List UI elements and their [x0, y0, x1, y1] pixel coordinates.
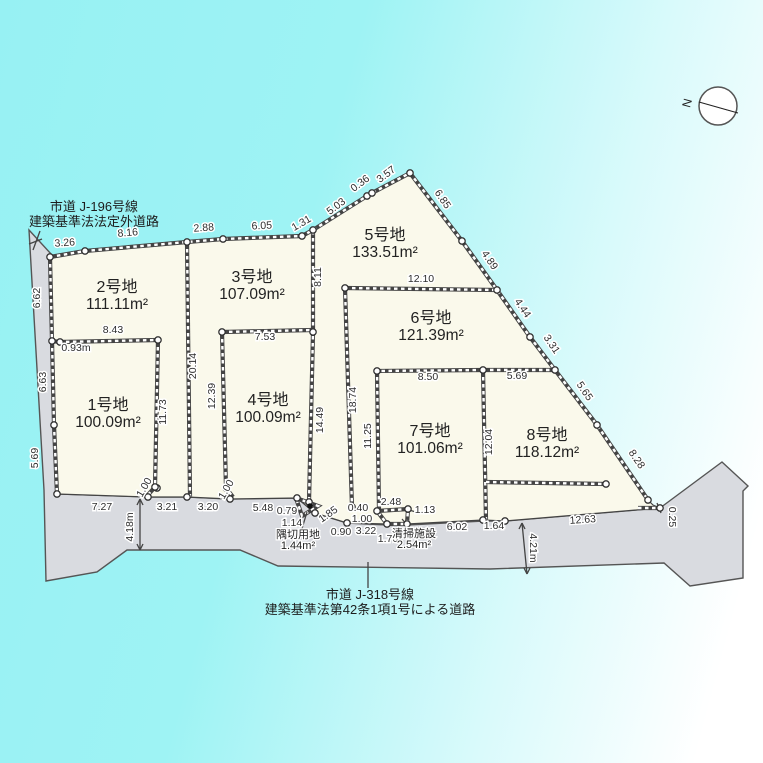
survey-point: [310, 227, 316, 233]
dimension-label: 4.18m: [124, 512, 136, 541]
plot-name: 2号地: [97, 278, 138, 296]
dimension-label: 1.13: [415, 504, 436, 516]
survey-point: [369, 190, 375, 196]
survey-point: [49, 338, 55, 344]
dimension-label: 7.27: [92, 501, 113, 513]
dimension-label: 3.22: [356, 525, 377, 537]
survey-point: [220, 236, 226, 242]
compass-n-label: N: [679, 97, 695, 109]
compass-circle: [699, 87, 737, 125]
dimension-label: 5.48: [253, 502, 274, 514]
dimension-label: 12.10: [408, 273, 434, 285]
site-plan-canvas: 3.268.162.886.051.315.030.363.576.854.89…: [0, 0, 763, 763]
special-area-size: 2.54m²: [397, 539, 432, 551]
dimension-label: 1.00: [352, 513, 373, 525]
dimension-label: 12.63: [569, 513, 596, 527]
north-compass: N: [679, 87, 738, 125]
dimension-label: 12.04: [483, 429, 495, 455]
plot-name: 3号地: [232, 268, 273, 286]
dimension-label: 6.62: [31, 288, 43, 309]
dimension-label: 1.14: [282, 517, 303, 529]
survey-point: [603, 481, 609, 487]
survey-point: [480, 367, 486, 373]
dimension-label: 12.39: [206, 383, 218, 409]
special-area-name: 清掃施設: [392, 526, 436, 540]
dimension-label: 8.11: [312, 267, 324, 287]
dimension-label: 3.26: [54, 236, 75, 249]
special-area-size: 1.44m²: [281, 540, 316, 552]
survey-point: [552, 367, 558, 373]
plot-name: 4号地: [248, 391, 289, 409]
survey-point: [645, 497, 651, 503]
dimension-label: 11.73: [157, 399, 169, 425]
dimension-label: 0.90: [331, 526, 352, 538]
special-area-label-2: 清掃施設2.54m²: [392, 526, 436, 551]
survey-point: [51, 422, 57, 428]
road-label-top: 市道 J-196号線: [50, 199, 138, 214]
plot-area: 100.09m²: [235, 409, 300, 426]
dimension-label: 14.49: [314, 407, 326, 433]
survey-point: [407, 170, 413, 176]
dimension-label: 2.88: [193, 221, 214, 234]
survey-point: [47, 254, 53, 260]
dimension-label: 6.05: [251, 219, 272, 232]
plot-name: 1号地: [88, 396, 129, 414]
special-area-label-1: 隅切用地1.44m²: [276, 528, 320, 552]
survey-point: [219, 329, 225, 335]
plot-area: 107.09m²: [219, 286, 284, 303]
survey-point: [155, 337, 161, 343]
plot-name: 6号地: [411, 309, 452, 327]
dimension-label: 8.43: [103, 324, 124, 336]
dimension-label: 0.79: [277, 505, 298, 517]
road-label-bottom: 市道 J-318号線: [326, 587, 414, 602]
survey-point: [374, 368, 380, 374]
survey-point: [527, 334, 533, 340]
leader-line: [527, 568, 530, 574]
dimension-label: 8.50: [418, 371, 439, 383]
plot-area: 100.09m²: [75, 414, 140, 431]
dimension-label: 0.36: [348, 173, 372, 195]
survey-point: [184, 494, 190, 500]
dimension-label: 4.21m: [527, 533, 539, 562]
benchmark-dot: [307, 503, 313, 509]
survey-point: [404, 521, 410, 527]
survey-point: [299, 233, 305, 239]
dimension-label: 5.69: [507, 370, 528, 382]
plot-area: 101.06m²: [397, 440, 462, 457]
survey-point: [310, 329, 316, 335]
survey-point: [405, 506, 411, 512]
survey-point: [594, 422, 600, 428]
plot-name: 5号地: [365, 226, 406, 244]
dimension-label: 8.28: [626, 447, 647, 471]
dimension-label: 11.25: [362, 423, 374, 449]
survey-point: [384, 521, 390, 527]
plot-name: 7号地: [410, 422, 451, 440]
survey-point: [374, 508, 380, 514]
land-plot-map: 3.268.162.886.051.315.030.363.576.854.89…: [0, 0, 763, 763]
road-label-top: 建築基準法法定外道路: [29, 214, 159, 229]
dimension-label: 3.20: [198, 501, 219, 513]
dimension-label: 18.74: [347, 387, 359, 413]
plot-area: 133.51m²: [352, 244, 417, 261]
boundary-line: [486, 482, 606, 484]
dimension-label: 1.64: [484, 520, 505, 532]
survey-point: [82, 248, 88, 254]
survey-point: [342, 285, 348, 291]
dimension-label: 2.48: [381, 496, 402, 508]
survey-point: [494, 287, 500, 293]
dimension-label: 6.63: [37, 372, 49, 393]
survey-point: [54, 491, 60, 497]
dimension-label: 6.02: [447, 521, 468, 533]
dimension-label: 7.53: [255, 331, 276, 343]
road-label-bottom: 建築基準法第42条1項1号による道路: [265, 602, 476, 617]
survey-point: [459, 238, 465, 244]
dimension-label: 5.69: [29, 448, 41, 469]
dimension-label: 20.14: [187, 353, 199, 379]
plot-name: 8号地: [527, 426, 568, 444]
dimension-label: 0.93m: [61, 342, 90, 354]
plot-area: 111.11m²: [86, 296, 148, 313]
survey-point: [184, 239, 190, 245]
dimension-label: 0.25: [666, 507, 678, 528]
survey-point: [294, 495, 300, 501]
plot-area: 121.39m²: [398, 327, 463, 344]
survey-point: [657, 505, 663, 511]
dimension-label: 3.21: [157, 501, 178, 513]
plot-area: 118.12m²: [515, 444, 579, 461]
